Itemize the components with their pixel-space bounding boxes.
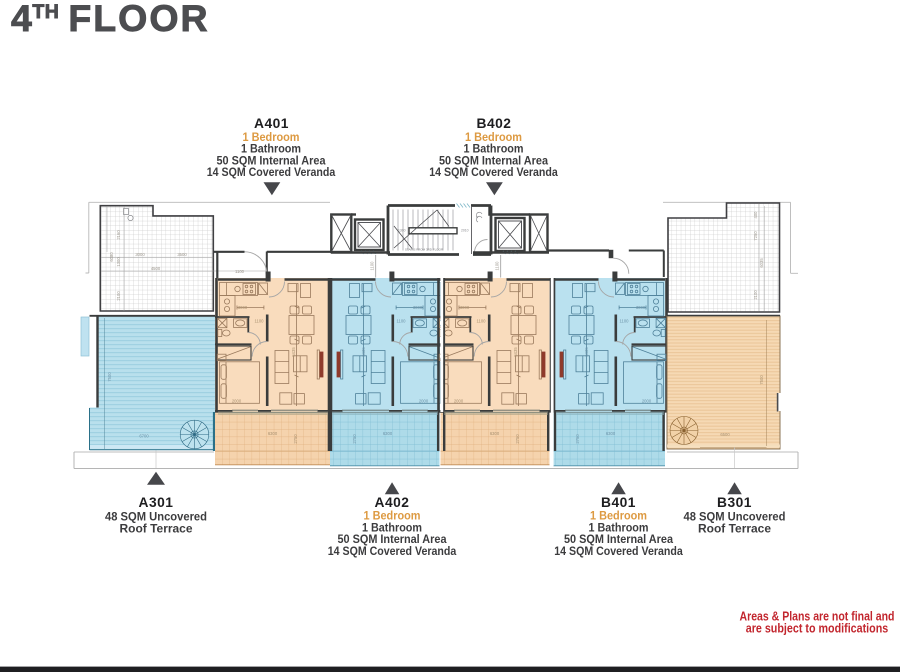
svg-text:1100: 1100: [254, 319, 264, 324]
svg-text:2000: 2000: [642, 399, 652, 404]
svg-text:6300: 6300: [606, 431, 616, 436]
svg-text:Roof Terrace: Roof Terrace: [120, 521, 193, 535]
svg-text:A301: A301: [139, 495, 174, 510]
svg-text:14 SQM Covered Veranda: 14 SQM Covered Veranda: [328, 544, 457, 558]
svg-text:1100: 1100: [619, 319, 629, 324]
svg-text:3000: 3000: [238, 305, 248, 310]
svg-text:14 SQM Covered Veranda: 14 SQM Covered Veranda: [429, 165, 558, 179]
svg-text:1100: 1100: [495, 261, 500, 271]
svg-text:2000: 2000: [454, 399, 464, 404]
svg-text:are subject to modifications: are subject to modifications: [746, 621, 889, 635]
svg-text:400: 400: [753, 211, 758, 219]
svg-text:7500: 7500: [107, 372, 112, 382]
svg-text:B301: B301: [717, 495, 752, 510]
svg-text:6300: 6300: [383, 431, 393, 436]
svg-text:STAIRS FROM 3RD FLOOR: STAIRS FROM 3RD FLOOR: [405, 247, 444, 251]
svg-text:1100: 1100: [370, 261, 375, 271]
svg-text:2010: 2010: [461, 229, 469, 233]
svg-text:1100: 1100: [476, 319, 486, 324]
svg-text:1100: 1100: [235, 269, 245, 274]
svg-text:6035: 6035: [759, 258, 764, 268]
svg-text:2750: 2750: [575, 434, 580, 444]
svg-text:5435: 5435: [291, 347, 296, 357]
svg-text:5435: 5435: [361, 347, 366, 357]
svg-text:2750: 2750: [352, 434, 357, 444]
svg-text:3500: 3500: [177, 252, 187, 257]
svg-text:3000: 3000: [135, 252, 145, 257]
svg-text:2750: 2750: [293, 434, 298, 444]
svg-text:7250: 7250: [753, 231, 758, 241]
svg-text:7500: 7500: [759, 375, 764, 385]
svg-text:Roof Terrace: Roof Terrace: [698, 521, 771, 535]
svg-text:3000: 3000: [413, 305, 423, 310]
svg-text:4500: 4500: [151, 266, 161, 271]
svg-text:14 SQM Covered Veranda: 14 SQM Covered Veranda: [207, 165, 336, 179]
svg-text:2000: 2000: [419, 399, 429, 404]
svg-text:2100: 2100: [116, 291, 121, 301]
svg-text:1300: 1300: [398, 229, 406, 233]
svg-text:3000: 3000: [636, 305, 646, 310]
svg-text:1100: 1100: [396, 319, 406, 324]
svg-text:2000: 2000: [232, 399, 242, 404]
svg-text:6080: 6080: [109, 252, 114, 262]
svg-text:3000: 3000: [460, 305, 470, 310]
svg-text:6500: 6500: [720, 432, 730, 437]
svg-text:14 SQM Covered Veranda: 14 SQM Covered Veranda: [554, 544, 683, 558]
svg-text:2160: 2160: [116, 230, 121, 240]
svg-text:2750: 2750: [515, 434, 520, 444]
svg-text:2100: 2100: [753, 290, 758, 300]
svg-text:6700: 6700: [139, 434, 149, 439]
svg-text:5435: 5435: [584, 347, 589, 357]
svg-text:5435: 5435: [513, 347, 518, 357]
svg-text:1300: 1300: [116, 257, 121, 267]
svg-text:6300: 6300: [268, 431, 278, 436]
svg-text:6300: 6300: [490, 431, 500, 436]
